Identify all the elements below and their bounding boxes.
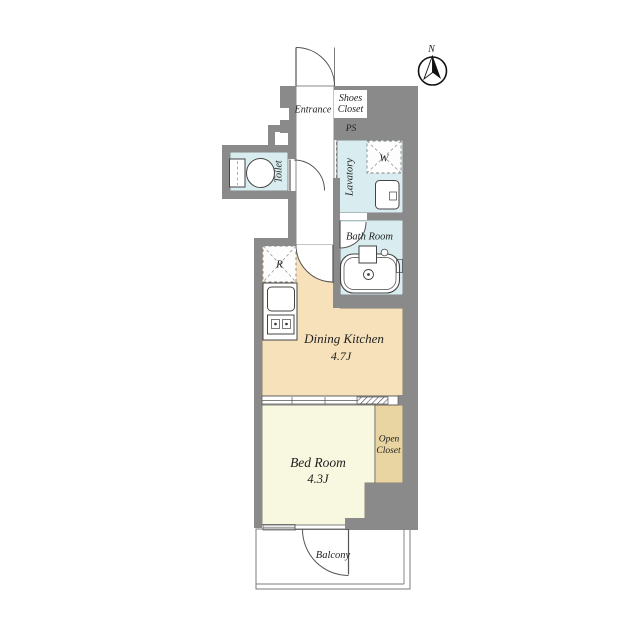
compass: N bbox=[419, 44, 447, 85]
wall-bath-bottom bbox=[340, 295, 403, 308]
open-closet-label-line2: Closet bbox=[376, 446, 401, 456]
dining-kitchen-label: Dining Kitchen bbox=[303, 331, 384, 346]
wall-kitchen-top bbox=[254, 238, 296, 246]
fridge-label: R bbox=[275, 259, 283, 271]
open-closet-label-line1: Open bbox=[379, 435, 400, 445]
wall-meter-notch bbox=[279, 108, 289, 120]
bed-room-label: Bed Room bbox=[290, 455, 346, 470]
bath-room-label: Bath Room bbox=[346, 232, 393, 243]
bathtub-drain-center bbox=[367, 273, 370, 276]
lavatory-label: Lavatory bbox=[345, 158, 356, 197]
entrance-label: Entrance bbox=[294, 105, 332, 116]
toilet-label: Toilet bbox=[274, 160, 285, 183]
wall-toilet-top bbox=[222, 145, 296, 152]
wall-corridor-left-lower bbox=[288, 191, 296, 245]
wash-basin bbox=[376, 181, 400, 210]
bath-stool bbox=[359, 246, 377, 263]
wall-bedroom-bottom bbox=[345, 518, 418, 530]
wall-toilet-bottom bbox=[222, 191, 296, 199]
stove-burner-2-knob bbox=[285, 323, 288, 326]
compass-north-label: N bbox=[427, 44, 436, 55]
dining-kitchen-size-label: 4.7J bbox=[331, 349, 352, 363]
shoes-closet-label-line1: Shoes bbox=[339, 93, 362, 104]
ps-label: PS bbox=[345, 124, 357, 134]
wall-corridor-right bbox=[333, 178, 340, 308]
balcony-label: Balcony bbox=[316, 550, 351, 561]
bath-door-opening bbox=[340, 213, 367, 220]
shoes-closet-label-line2: Closet bbox=[338, 104, 364, 115]
floor-plan-drawing: N Entrance Shoes Closet PS Toilet Lavato… bbox=[0, 0, 640, 640]
kitchen-sink bbox=[268, 287, 295, 311]
bed-room-size-label: 4.3J bbox=[307, 472, 330, 486]
stove-burner-1-knob bbox=[274, 323, 277, 326]
shower-head bbox=[381, 249, 388, 256]
partition-stacked-panels bbox=[357, 397, 388, 404]
wall-partition-right-end bbox=[398, 395, 418, 405]
wall-toilet-left bbox=[222, 145, 230, 199]
wall-left-column bbox=[254, 238, 262, 528]
entrance-door-swing bbox=[296, 48, 335, 87]
wall-right-column bbox=[403, 140, 418, 530]
floor-plan: N Entrance Shoes Closet PS Toilet Lavato… bbox=[0, 0, 640, 640]
washer-label: W bbox=[379, 153, 389, 165]
wall-step-vertical bbox=[268, 125, 275, 152]
toilet-bowl bbox=[247, 159, 275, 188]
